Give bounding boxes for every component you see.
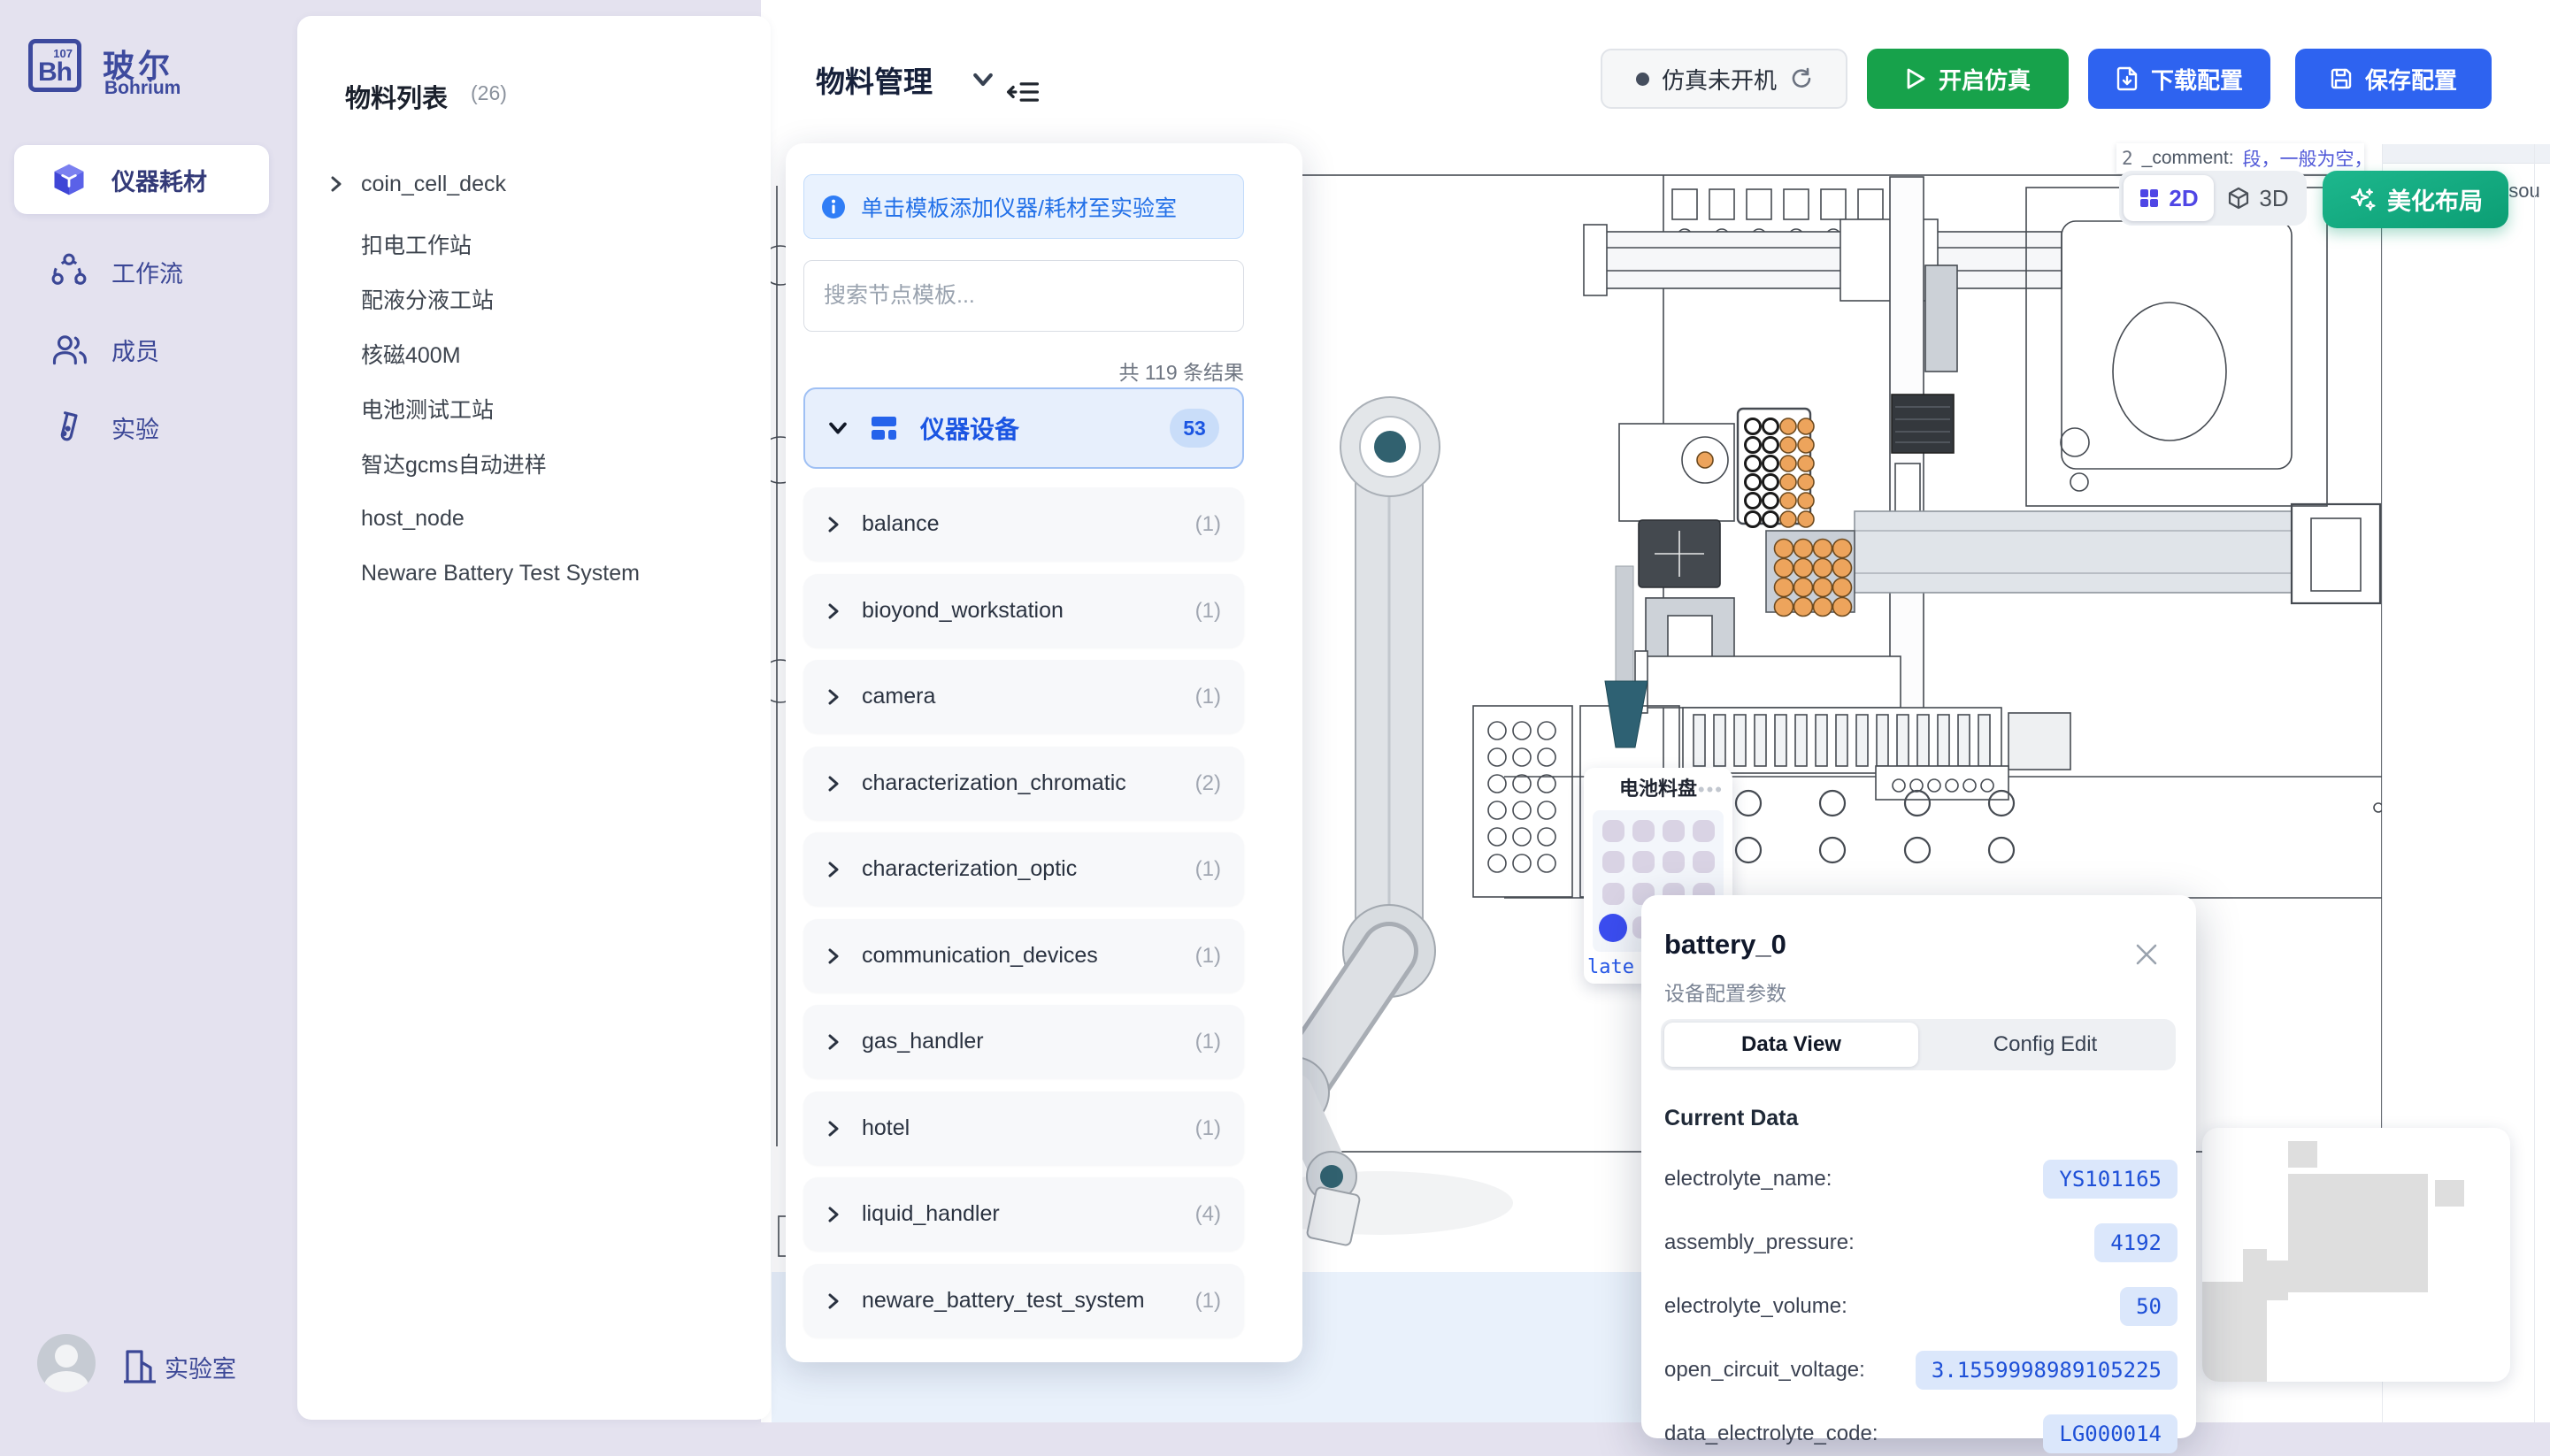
- material-item-label: 电池测试工站: [361, 393, 494, 425]
- lab-label[interactable]: 实验室: [165, 1350, 236, 1384]
- user-avatar[interactable]: [37, 1334, 96, 1392]
- battery-slot[interactable]: [1632, 851, 1655, 873]
- collapse-list-icon[interactable]: [1005, 74, 1041, 110]
- data-row-label: electrolyte_volume:: [1664, 1294, 1847, 1319]
- sidebar-item-label: 仪器耗材: [111, 163, 207, 197]
- template-item-label: balance: [862, 511, 1176, 537]
- tab-data-view[interactable]: Data View: [1664, 1023, 1918, 1067]
- template-item-label: hotel: [862, 1115, 1176, 1141]
- tooltip-line-number: 2: [2122, 148, 2133, 169]
- data-row-label: assembly_pressure:: [1664, 1230, 1855, 1255]
- template-item-characterization-optic[interactable]: characterization_optic (1): [803, 832, 1244, 906]
- cube-3d-icon: [2227, 187, 2250, 210]
- data-row-value: 3.1559998989105225: [1916, 1351, 2177, 1390]
- template-item-liquid-handler[interactable]: liquid_handler (4): [803, 1177, 1244, 1251]
- template-item-count: (1): [1195, 685, 1221, 709]
- sidebar: 107 Bh 玻尔 Bohrium 仪器耗材 工作流 成员: [0, 0, 292, 1438]
- material-item-label: 智达gcms自动进样: [361, 448, 547, 479]
- sidebar-item-members[interactable]: 成员: [14, 315, 269, 384]
- minimap[interactable]: [2202, 1128, 2510, 1382]
- material-item-label: 配液分液工站: [361, 283, 494, 315]
- battery-slot[interactable]: [1663, 820, 1685, 842]
- popup-subtitle: 设备配置参数: [1664, 977, 1786, 1007]
- download-button-label: 下载配置: [2151, 63, 2243, 96]
- sidebar-item-workflow[interactable]: 工作流: [14, 237, 269, 306]
- title-dropdown-chevron-icon[interactable]: [972, 71, 995, 88]
- beautify-button-label: 美化布局: [2387, 182, 2483, 217]
- category-label: 仪器设备: [920, 410, 1148, 446]
- battery-slot-selected[interactable]: [1599, 914, 1627, 942]
- info-icon: [820, 194, 847, 220]
- template-item-label: characterization_optic: [862, 856, 1176, 882]
- right-panel-header-band: [2383, 144, 2550, 164]
- file-download-icon: [2116, 66, 2139, 91]
- material-item[interactable]: 电池测试工站: [329, 389, 745, 428]
- node-template-palette: 单击模板添加仪器/耗材至实验室 共 119 条结果 仪器设备 53 balanc…: [786, 143, 1302, 1362]
- data-row-open-circuit-voltage: open_circuit_voltage: 3.1559998989105225: [1664, 1348, 2177, 1392]
- data-row-value: 4192: [2094, 1223, 2177, 1262]
- sparkles-icon: [2348, 186, 2377, 214]
- workflow-icon: [50, 252, 88, 291]
- palette-banner-text: 单击模板添加仪器/耗材至实验室: [861, 191, 1177, 223]
- view-mode-toggle: 2D 3D: [2119, 171, 2307, 226]
- test-tube-icon: [50, 408, 88, 447]
- template-item-bioyond-workstation[interactable]: bioyond_workstation (1): [803, 574, 1244, 648]
- material-item-label: 核磁400M: [361, 338, 461, 370]
- play-icon: [1905, 67, 1926, 90]
- template-item-count: (1): [1195, 944, 1221, 969]
- tooltip-value: 段，一般为空，stat: [2243, 145, 2364, 172]
- save-config-button[interactable]: 保存配置: [2295, 49, 2492, 109]
- data-row-data-electrolyte-code: data_electrolyte_code: LG000014: [1664, 1412, 2177, 1456]
- materials-panel: 物料列表 (26) coin_cell_deck 扣电工作站 配液分液工站 核磁…: [297, 16, 771, 1420]
- comment-tooltip: 2 _comment: 段，一般为空，stat: [2116, 143, 2364, 173]
- popup-tab-bar: Data View Config Edit: [1661, 1019, 2176, 1070]
- tray-menu-dots-icon[interactable]: •••: [1698, 778, 1724, 801]
- plate-label-fragment: late: [1587, 956, 1634, 978]
- save-button-label: 保存配置: [2365, 63, 2457, 96]
- template-item-label: camera: [862, 684, 1176, 709]
- material-item[interactable]: 扣电工作站: [329, 225, 745, 264]
- battery-slot[interactable]: [1602, 883, 1624, 905]
- tooltip-key: _comment:: [2142, 148, 2234, 169]
- data-row-label: electrolyte_name:: [1664, 1167, 1832, 1192]
- minimap-block: [2202, 1282, 2267, 1382]
- data-row-electrolyte-name: electrolyte_name: YS101165: [1664, 1157, 2177, 1201]
- sidebar-item-instruments[interactable]: 仪器耗材: [14, 145, 269, 214]
- logo-title-en: Bohrium: [104, 78, 180, 99]
- category-instrument-devices[interactable]: 仪器设备 53: [803, 387, 1244, 469]
- sidebar-footer: 实验室: [0, 1327, 292, 1406]
- template-item-label: bioyond_workstation: [862, 598, 1176, 624]
- template-item-neware-battery-test-system[interactable]: neware_battery_test_system (1): [803, 1264, 1244, 1337]
- data-row-assembly-pressure: assembly_pressure: 4192: [1664, 1221, 2177, 1265]
- sidebar-item-label: 实验: [111, 410, 159, 445]
- tree-item-coin-cell-deck[interactable]: coin_cell_deck: [329, 165, 745, 203]
- template-item-gas-handler[interactable]: gas_handler (1): [803, 1005, 1244, 1078]
- battery-slot[interactable]: [1632, 820, 1655, 842]
- materials-title: 物料列表: [345, 78, 448, 115]
- toggle-3d-label: 3D: [2259, 185, 2288, 212]
- close-icon[interactable]: [2133, 941, 2160, 968]
- bohrium-logo: 107 Bh: [28, 39, 81, 92]
- tree-item-label: coin_cell_deck: [361, 172, 506, 197]
- start-button-label: 开启仿真: [1939, 63, 2031, 96]
- material-item-label: 扣电工作站: [361, 228, 472, 260]
- material-item[interactable]: 智达gcms自动进样: [329, 444, 745, 483]
- battery-slot[interactable]: [1663, 851, 1685, 873]
- template-item-count: (2): [1195, 771, 1221, 796]
- template-item-count: (1): [1195, 599, 1221, 624]
- data-row-electrolyte-volume: electrolyte_volume: 50: [1664, 1284, 2177, 1329]
- template-item-label: liquid_handler: [862, 1201, 1176, 1227]
- material-item-label: host_node: [361, 506, 465, 532]
- material-item[interactable]: 核磁400M: [329, 334, 745, 373]
- palette-info-banner: 单击模板添加仪器/耗材至实验室: [803, 174, 1244, 239]
- data-row-value: YS101165: [2043, 1160, 2177, 1199]
- logo-initials: Bh: [38, 57, 72, 88]
- right-panel-divider: [2534, 144, 2535, 1422]
- toggle-3d-button[interactable]: 3D: [2214, 175, 2302, 221]
- minimap-block: [2288, 1174, 2428, 1292]
- status-label: 仿真未开机: [1662, 63, 1777, 96]
- template-item-count: (1): [1195, 1289, 1221, 1314]
- toggle-2d-label: 2D: [2169, 185, 2198, 212]
- battery-slot[interactable]: [1693, 851, 1715, 873]
- page-title: 物料管理: [816, 58, 933, 101]
- template-item-label: neware_battery_test_system: [862, 1288, 1176, 1314]
- refresh-icon[interactable]: [1789, 67, 1812, 90]
- popup-section-title: Current Data: [1664, 1106, 1798, 1131]
- template-item-count: (4): [1195, 1202, 1221, 1227]
- search-input[interactable]: [803, 260, 1244, 332]
- material-item[interactable]: 配液分液工站: [329, 280, 745, 318]
- tab-config-edit[interactable]: Config Edit: [1918, 1023, 2172, 1067]
- popup-title: battery_0: [1664, 929, 1786, 961]
- battery-slot[interactable]: [1693, 820, 1715, 842]
- template-item-label: gas_handler: [862, 1029, 1176, 1054]
- devices-grid-icon: [869, 413, 899, 443]
- template-item-communication-devices[interactable]: communication_devices (1): [803, 919, 1244, 992]
- materials-count: (26): [471, 81, 507, 105]
- result-count: 共 119 条结果: [1119, 356, 1244, 386]
- status-dot-icon: [1636, 73, 1649, 86]
- template-item-count: (1): [1195, 512, 1221, 537]
- template-item-count: (1): [1195, 857, 1221, 882]
- chevron-down-icon: [828, 420, 848, 436]
- data-row-label: data_electrolyte_code:: [1664, 1422, 1878, 1446]
- lab-building-icon: [122, 1346, 157, 1385]
- material-item[interactable]: Neware Battery Test System: [329, 554, 745, 593]
- members-icon: [50, 330, 88, 369]
- sidebar-item-experiments[interactable]: 实验: [14, 393, 269, 462]
- template-item-hotel[interactable]: hotel (1): [803, 1092, 1244, 1165]
- minimap-block: [2267, 1261, 2288, 1300]
- minimap-block: [2435, 1180, 2464, 1207]
- template-item-label: communication_devices: [862, 943, 1176, 969]
- beautify-layout-button[interactable]: 美化布局: [2323, 171, 2508, 228]
- material-item[interactable]: host_node: [329, 499, 745, 538]
- start-simulation-button[interactable]: 开启仿真: [1867, 49, 2069, 109]
- minimap-block: [2288, 1141, 2317, 1168]
- data-row-value: 50: [2120, 1287, 2177, 1326]
- template-item-camera[interactable]: camera (1): [803, 660, 1244, 733]
- category-count-badge: 53: [1170, 409, 1219, 448]
- toggle-2d-button[interactable]: 2D: [2124, 175, 2214, 221]
- data-row-label: open_circuit_voltage:: [1664, 1358, 1865, 1383]
- simulation-status-pill[interactable]: 仿真未开机: [1601, 49, 1847, 109]
- sidebar-item-label: 成员: [111, 333, 159, 367]
- sidebar-item-label: 工作流: [111, 255, 183, 289]
- template-item-count: (1): [1195, 1030, 1221, 1054]
- cube-icon: [50, 160, 88, 199]
- template-item-balance[interactable]: balance (1): [803, 487, 1244, 561]
- download-config-button[interactable]: 下载配置: [2088, 49, 2270, 109]
- data-row-value: LG000014: [2043, 1414, 2177, 1453]
- save-icon: [2330, 67, 2353, 90]
- template-item-characterization-chromatic[interactable]: characterization_chromatic (2): [803, 747, 1244, 820]
- grid-2d-icon: [2139, 188, 2160, 209]
- template-item-count: (1): [1195, 1116, 1221, 1141]
- template-item-label: characterization_chromatic: [862, 770, 1176, 796]
- material-item-label: Neware Battery Test System: [361, 561, 640, 586]
- battery-config-popup: battery_0 设备配置参数 Data View Config Edit C…: [1641, 895, 2196, 1438]
- battery-slot[interactable]: [1602, 851, 1624, 873]
- battery-slot[interactable]: [1602, 820, 1624, 842]
